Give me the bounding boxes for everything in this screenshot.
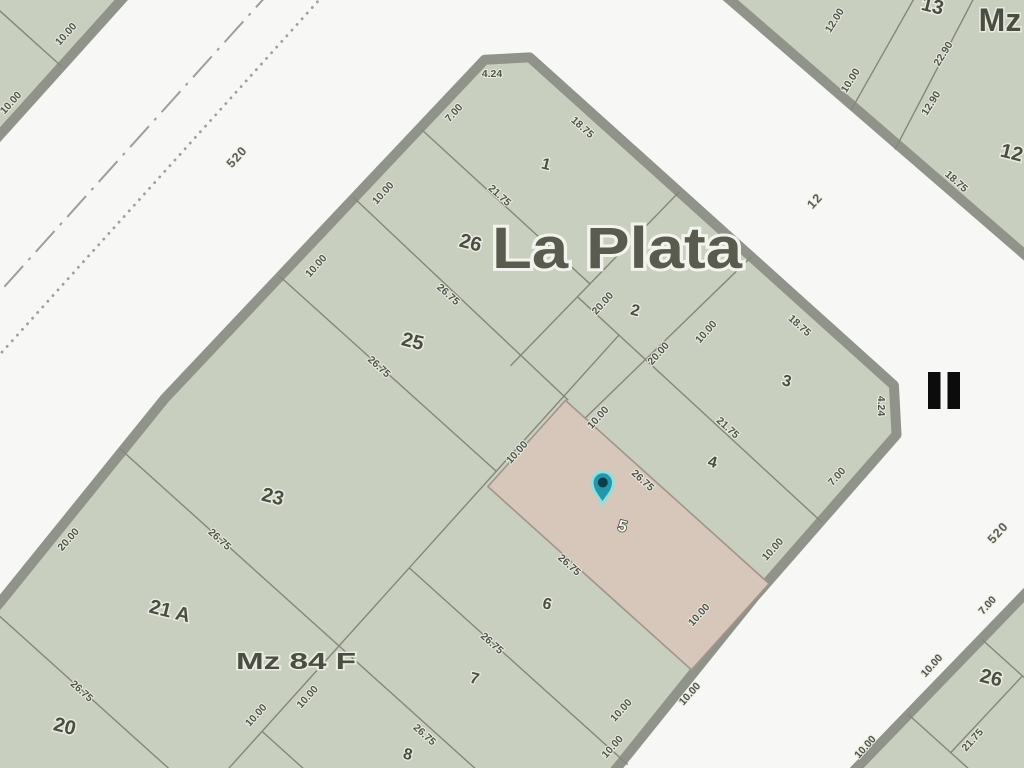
svg-text:Mz 84 F: Mz 84 F	[236, 648, 356, 674]
svg-text:La Plata: La Plata	[492, 216, 743, 281]
svg-text:4.24: 4.24	[482, 68, 503, 80]
svg-text:Mz: Mz	[979, 2, 1022, 38]
svg-text:4.24: 4.24	[875, 396, 887, 417]
